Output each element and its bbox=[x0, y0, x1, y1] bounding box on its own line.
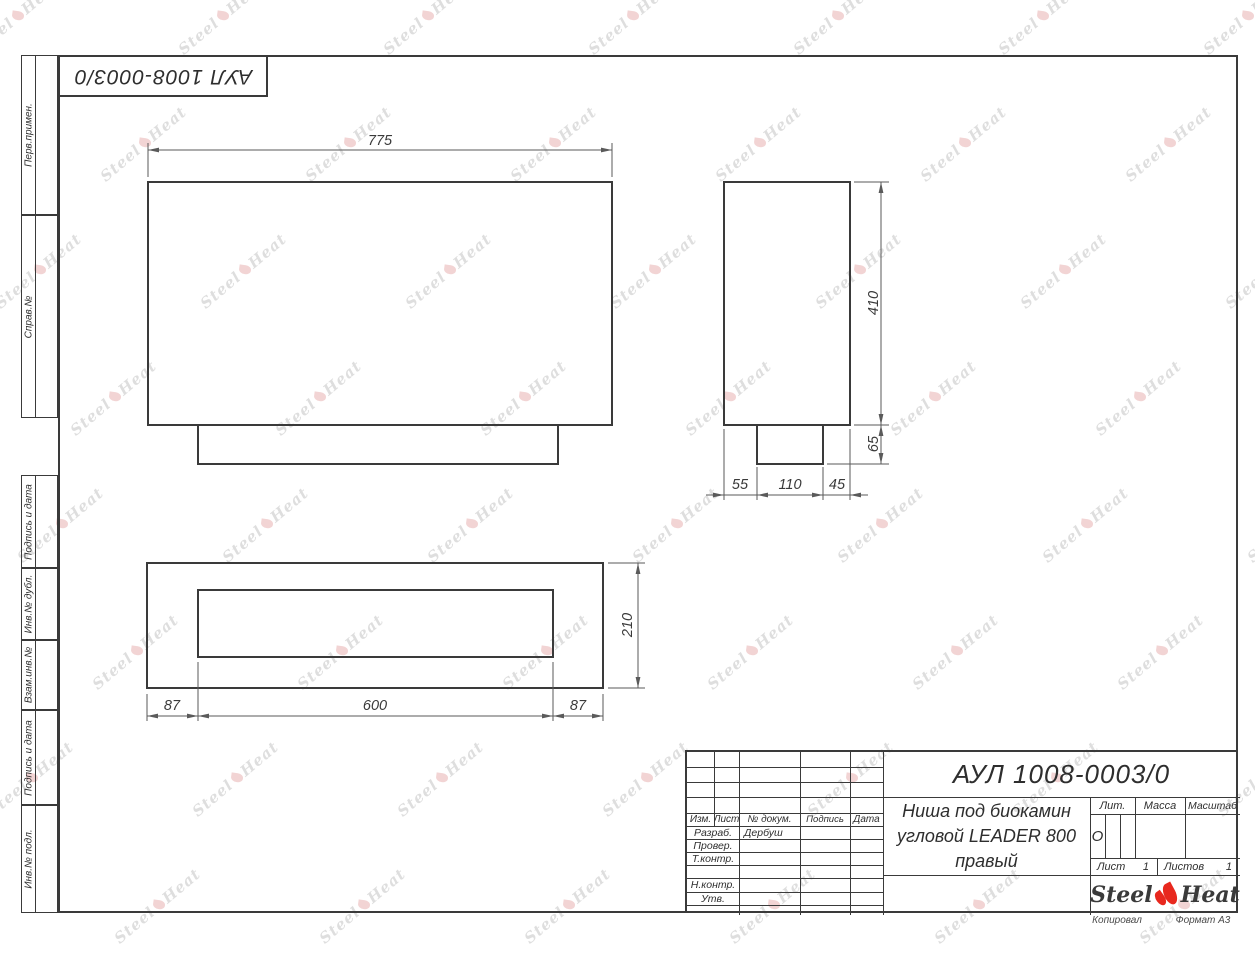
logo-steel-text: Steel bbox=[1090, 882, 1152, 908]
strip-label: Инв.№ дубл. bbox=[24, 575, 35, 634]
side-view-foot bbox=[757, 425, 823, 464]
strip-label: Взам.инв.№ bbox=[24, 647, 35, 703]
dim-foot-height: 65 bbox=[866, 435, 882, 452]
side-strip-cell: Инв.№ дубл. bbox=[21, 568, 58, 640]
title-block: АУЛ 1008-0003/0 Ниша под биокамин углово… bbox=[685, 750, 1238, 913]
col-header-list: Лист bbox=[714, 813, 739, 826]
title-block-line bbox=[800, 752, 801, 915]
dim-slot-width: 600 bbox=[363, 698, 387, 714]
side-strip-cell: Подпись и дата bbox=[21, 710, 58, 805]
title-block-line bbox=[1090, 814, 1240, 815]
title-block-line bbox=[687, 797, 883, 798]
lit-header: Лит. bbox=[1090, 797, 1135, 814]
dim-margin-left: 87 bbox=[164, 698, 181, 714]
mass-header: Масса bbox=[1135, 797, 1185, 814]
col-header-izm: Изм. bbox=[687, 813, 714, 826]
strip-label: Инв.№ подл. bbox=[24, 829, 35, 888]
dim-depth-back: 55 bbox=[732, 477, 749, 493]
side-strip-cell: Взам.инв.№ bbox=[21, 640, 58, 710]
side-strip-cell: Подпись и дата bbox=[21, 475, 58, 568]
strip-divider bbox=[35, 641, 36, 709]
strip-divider bbox=[35, 216, 36, 417]
signature-row-label: Т.контр. bbox=[687, 852, 739, 865]
top-doc-number: АУЛ 1008-0003/0 bbox=[74, 64, 252, 88]
strip-label: Подпись и дата bbox=[24, 484, 35, 560]
title-block-doc-number: АУЛ 1008-0003/0 bbox=[883, 752, 1240, 797]
dimension-lines bbox=[147, 143, 889, 721]
side-strip-cell: Инв.№ подл. bbox=[21, 805, 58, 913]
sheet-value: 1 bbox=[1143, 861, 1149, 873]
flame-icon bbox=[1156, 882, 1178, 909]
part-name-line1: Ниша под биокамин bbox=[902, 799, 1071, 824]
copied-note: Копировал bbox=[1072, 915, 1162, 926]
signature-row-value bbox=[739, 878, 800, 891]
strip-divider bbox=[35, 711, 36, 804]
strip-label: Подпись и дата bbox=[24, 720, 35, 796]
sheet-label: Лист bbox=[1097, 861, 1125, 873]
title-block-line bbox=[1105, 814, 1106, 858]
strip-divider bbox=[35, 806, 36, 912]
strip-divider bbox=[35, 56, 36, 214]
title-block-part-name: Ниша под биокамин угловой LEADER 800 пра… bbox=[883, 797, 1090, 875]
title-block-line bbox=[687, 767, 883, 768]
col-header-doc: № докум. bbox=[739, 813, 800, 826]
sheet-cell: Лист 1 bbox=[1090, 858, 1157, 875]
title-block-line bbox=[1120, 814, 1121, 858]
strip-divider bbox=[35, 476, 36, 567]
side-strip-cell: Перв.примен. bbox=[21, 55, 58, 215]
format-note: Формат А3 bbox=[1163, 915, 1243, 926]
signature-row-label bbox=[687, 865, 739, 878]
front-view-body bbox=[148, 182, 612, 425]
bottom-view-outline bbox=[147, 563, 603, 688]
signature-row-value: Дербуш bbox=[739, 826, 800, 839]
logo-heat-text: Heat bbox=[1181, 882, 1240, 908]
strip-label: Перв.примен. bbox=[24, 103, 35, 167]
strip-divider bbox=[35, 569, 36, 639]
dim-margin-right: 87 bbox=[570, 698, 587, 714]
bottom-view-slot bbox=[198, 590, 553, 657]
lit-value: О bbox=[1090, 814, 1105, 858]
title-block-line bbox=[687, 905, 883, 906]
sheets-label: Листов bbox=[1164, 861, 1204, 873]
part-name-line2: угловой LEADER 800 bbox=[897, 824, 1076, 849]
steelheat-logo: Steel Heat bbox=[1090, 875, 1240, 915]
dim-slot-depth: 110 bbox=[778, 477, 801, 493]
dimension-arrows bbox=[147, 148, 883, 719]
dim-depth-total: 210 bbox=[620, 613, 636, 638]
drawing-sheet: SteelHeatSteelHeatSteelHeatSteelHeatStee… bbox=[0, 0, 1255, 970]
signature-row-label: Н.контр. bbox=[687, 878, 739, 891]
sheets-value: 1 bbox=[1226, 861, 1232, 873]
signature-row-label: Разраб. bbox=[687, 826, 739, 839]
strip-label: Справ.№ bbox=[24, 295, 35, 338]
signature-row-value bbox=[739, 865, 800, 878]
col-header-date: Дата bbox=[850, 813, 883, 826]
signature-row-label: Утв. bbox=[687, 892, 739, 905]
scale-header: Масштаб bbox=[1185, 797, 1240, 814]
sheets-cell: Листов 1 bbox=[1157, 858, 1240, 875]
title-block-line bbox=[687, 782, 883, 783]
signature-row-label: Провер. bbox=[687, 839, 739, 852]
title-block-line bbox=[850, 752, 851, 915]
dim-side-height: 410 bbox=[866, 291, 882, 315]
signature-row-value bbox=[739, 852, 800, 865]
front-view-base bbox=[198, 425, 558, 464]
top-doc-number-box: АУЛ 1008-0003/0 bbox=[58, 55, 268, 97]
dim-front-width: 775 bbox=[368, 133, 393, 149]
signature-row-value bbox=[739, 839, 800, 852]
side-view-body bbox=[724, 182, 850, 425]
signature-row-value bbox=[739, 892, 800, 905]
side-strip-cell: Справ.№ bbox=[21, 215, 58, 418]
part-name-line3: правый bbox=[955, 849, 1018, 874]
dim-depth-front: 45 bbox=[829, 477, 846, 493]
col-header-sign: Подпись bbox=[800, 813, 850, 826]
